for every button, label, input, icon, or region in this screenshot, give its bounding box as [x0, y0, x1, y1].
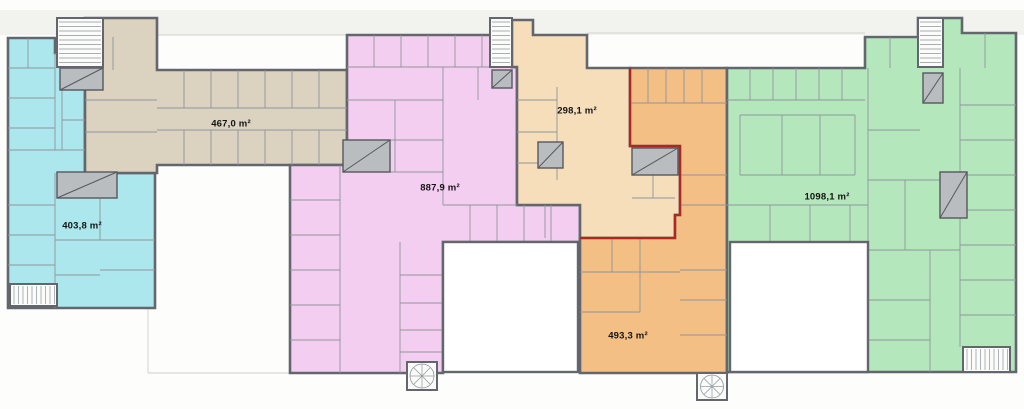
floorplan-drawing — [0, 0, 1024, 409]
unit-northwest-tan[interactable] — [85, 18, 347, 173]
stair-mid-north — [490, 18, 512, 67]
courtyard-east — [730, 242, 868, 372]
area-label-unit-west: 403,8 m² — [62, 221, 102, 232]
area-label-unit-south: 493,3 m² — [608, 331, 648, 342]
area-label-unit-north: 298,1 m² — [557, 106, 597, 117]
stair-ne — [918, 18, 943, 67]
floorplan-viewport: 403,8 m² 467,0 m² 887,9 m² 298,1 m² 493,… — [0, 0, 1024, 409]
area-label-unit-east: 1098,1 m² — [804, 192, 849, 203]
courtyard-west — [443, 242, 578, 372]
area-label-unit-northwest: 467,0 m² — [211, 119, 251, 130]
area-label-unit-central: 887,9 m² — [420, 183, 460, 194]
stair-nw — [57, 18, 103, 67]
